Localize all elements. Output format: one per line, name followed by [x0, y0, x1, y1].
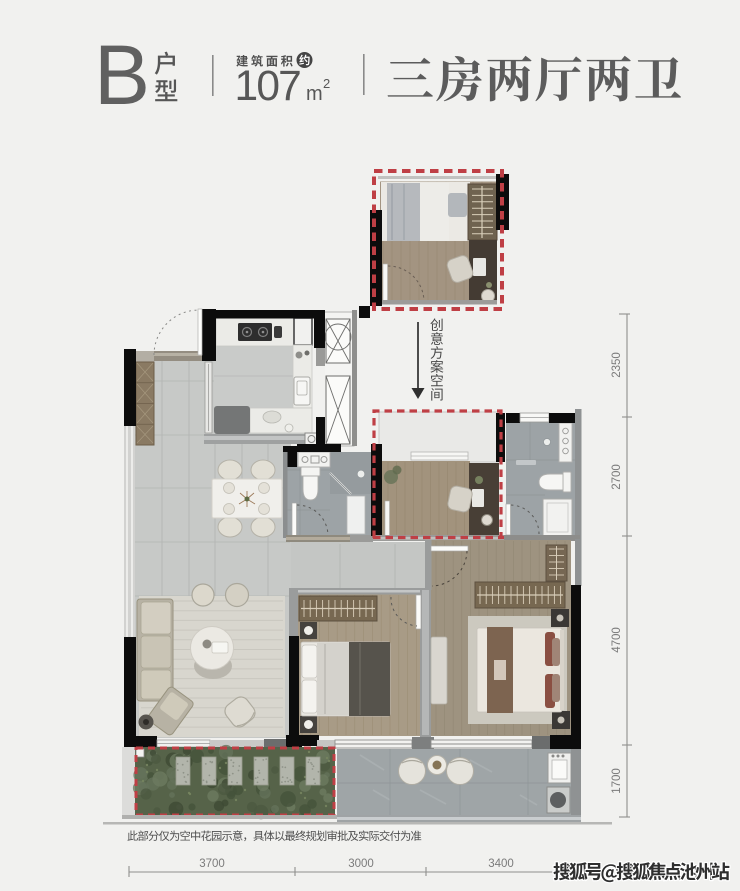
svg-text:2: 2	[323, 76, 330, 91]
svg-text:4700: 4700	[611, 627, 623, 653]
svg-text:3000: 3000	[348, 858, 374, 870]
svg-text:2350: 2350	[611, 352, 623, 378]
svg-text:1700: 1700	[611, 768, 623, 794]
svg-text:2700: 2700	[611, 464, 623, 490]
svg-text:B: B	[94, 28, 150, 122]
svg-text:3700: 3700	[199, 858, 225, 870]
svg-text:107: 107	[235, 63, 301, 110]
svg-text:3400: 3400	[488, 858, 514, 870]
svg-text:m: m	[306, 83, 323, 105]
